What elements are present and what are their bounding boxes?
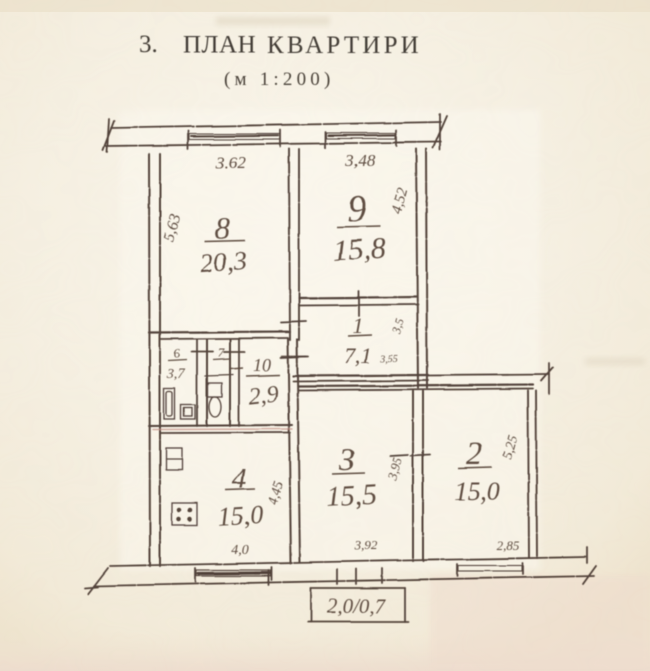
svg-text:4,0: 4,0	[231, 543, 249, 558]
svg-text:10: 10	[253, 355, 271, 375]
svg-text:(м 1:200): (м 1:200)	[224, 69, 335, 90]
svg-text:3,7: 3,7	[166, 367, 186, 382]
svg-text:20,3: 20,3	[199, 245, 248, 278]
svg-text:3,48: 3,48	[344, 151, 375, 170]
svg-text:КВАРТИРИ: КВАРТИРИ	[267, 32, 422, 59]
svg-text:3,92: 3,92	[354, 538, 378, 553]
svg-text:15,0: 15,0	[454, 477, 500, 506]
svg-text:6: 6	[174, 346, 181, 361]
svg-text:15,5: 15,5	[325, 479, 377, 514]
svg-text:2,0/0,7: 2,0/0,7	[327, 594, 387, 618]
svg-text:9: 9	[348, 188, 367, 230]
svg-text:3.62: 3.62	[215, 153, 246, 172]
svg-text:3.: 3.	[139, 31, 158, 58]
svg-text:3,55: 3,55	[379, 354, 398, 365]
svg-text:1: 1	[353, 313, 364, 338]
svg-text:2,9: 2,9	[247, 382, 280, 411]
svg-text:3: 3	[338, 441, 355, 477]
svg-text:7: 7	[218, 345, 225, 360]
svg-text:15,0: 15,0	[217, 500, 264, 531]
svg-text:2: 2	[466, 435, 482, 471]
svg-text:2,85: 2,85	[497, 538, 520, 553]
svg-text:15,8: 15,8	[332, 232, 386, 268]
svg-text:ПЛАН: ПЛАН	[183, 32, 256, 59]
svg-text:7,1: 7,1	[344, 343, 372, 368]
